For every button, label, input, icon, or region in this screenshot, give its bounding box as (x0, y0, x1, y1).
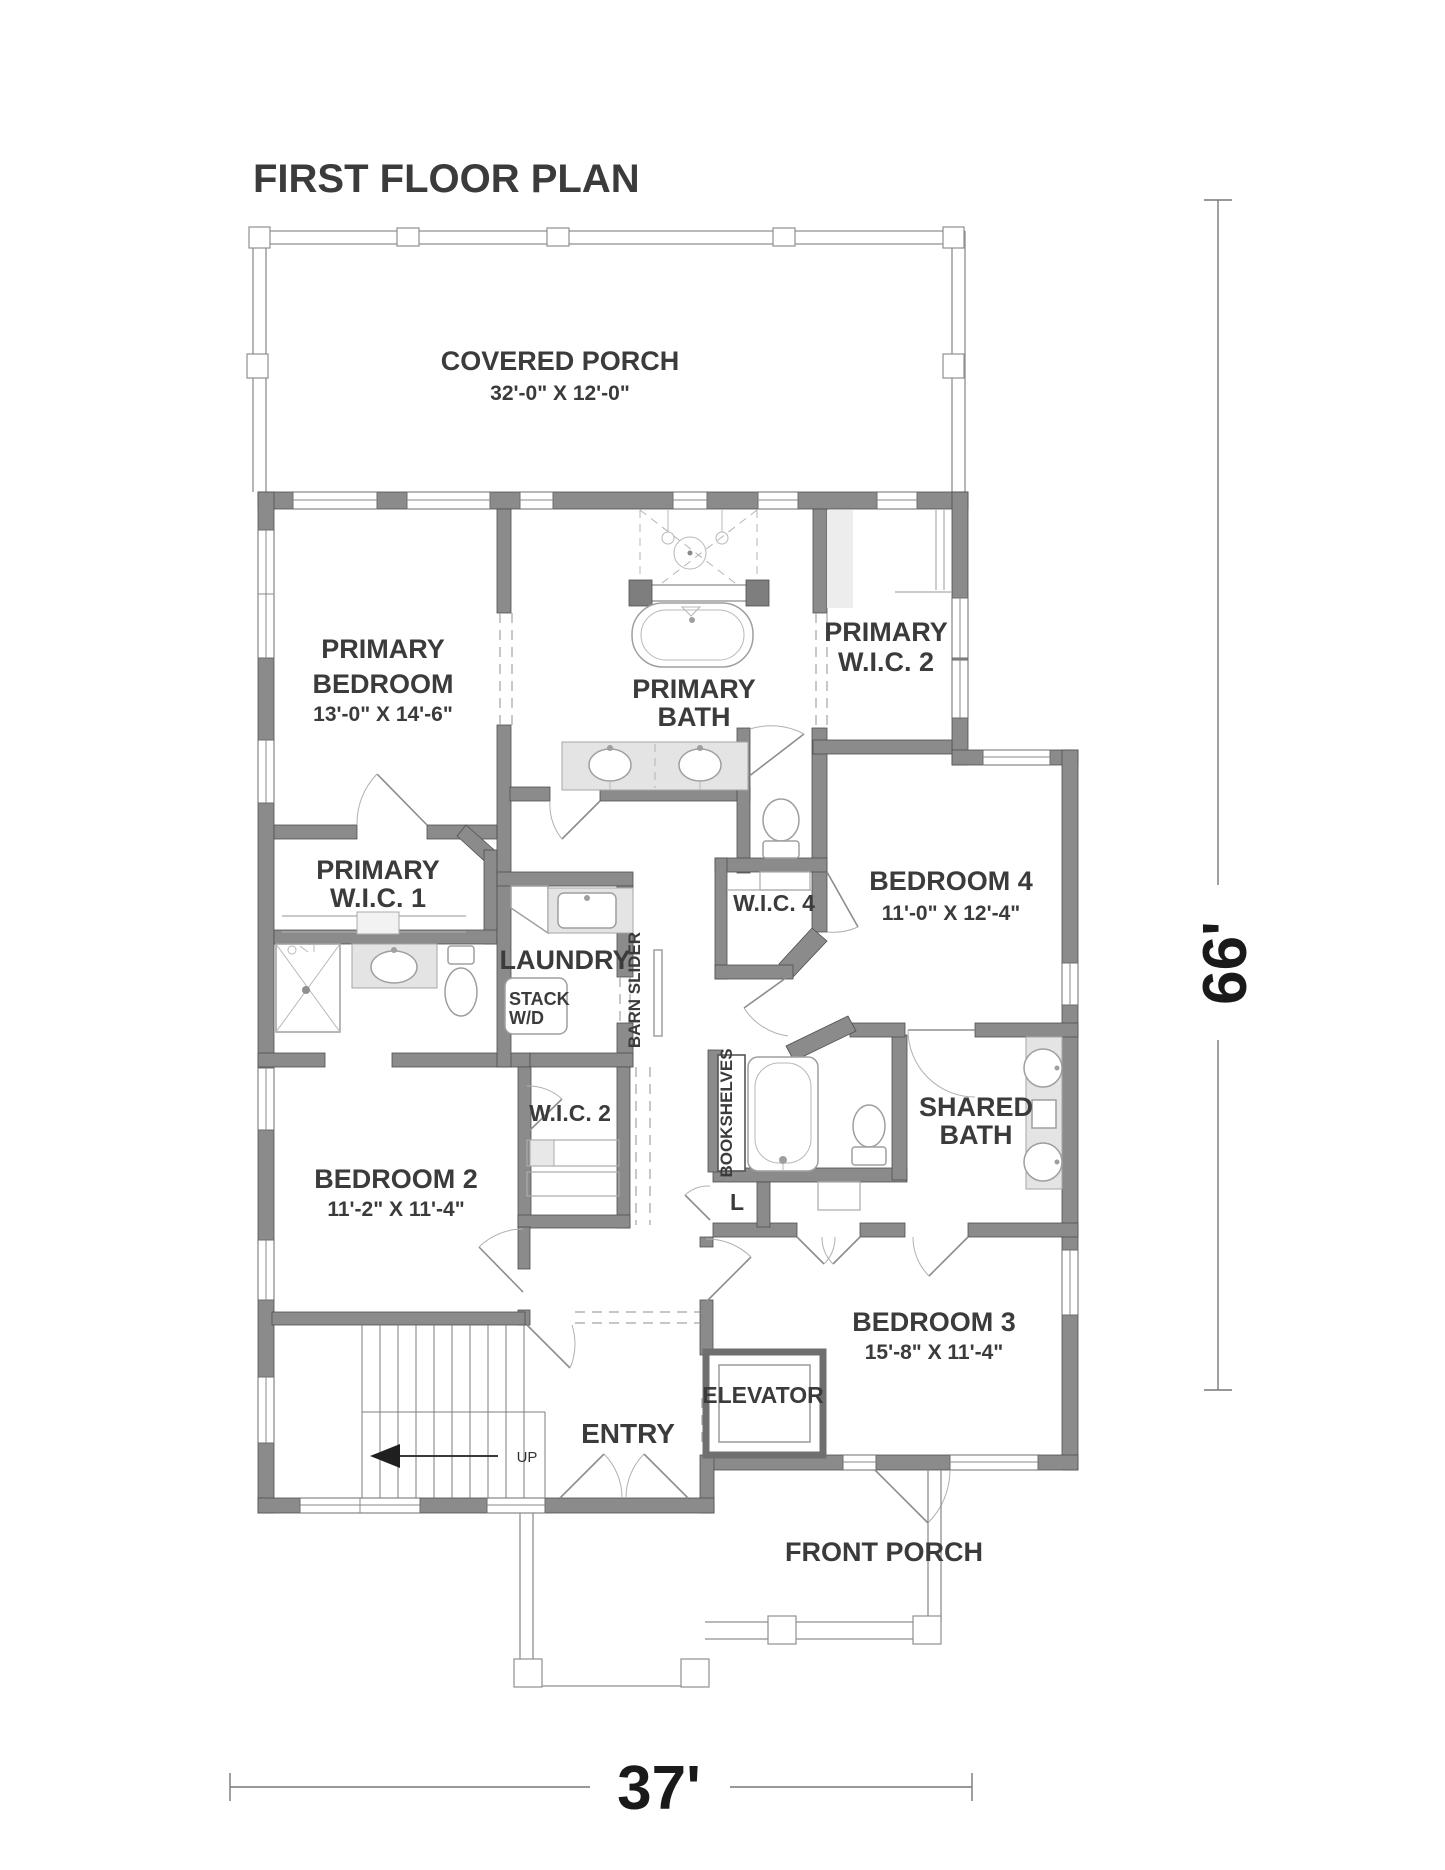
window (520, 492, 553, 509)
hall-bath-fixtures (276, 944, 477, 1032)
room-label-bedroom4: BEDROOM 4 (869, 866, 1033, 896)
door-linen (685, 1186, 710, 1220)
door-bath-bedroom3 (913, 1237, 968, 1276)
toilet (763, 799, 799, 858)
window (1062, 1250, 1078, 1315)
window (300, 1498, 420, 1513)
window (293, 492, 377, 509)
porch-post (773, 228, 795, 246)
dimension-height-value: 66' (1191, 921, 1260, 1005)
window (407, 492, 490, 509)
room-dims-primary-bedroom: 13'-0" X 14'-6" (313, 703, 453, 726)
shower-bench (640, 585, 757, 601)
room-label-shared-bath: SHARED (919, 1092, 1033, 1122)
porch-post (943, 227, 964, 248)
porch-post (397, 228, 419, 246)
room-label-covered-porch: COVERED PORCH (441, 346, 680, 376)
window (983, 750, 1050, 765)
door-bedroom3 (706, 1239, 751, 1302)
room-label-primary-wic2: W.I.C. 2 (838, 647, 934, 677)
porch-post (681, 1659, 709, 1687)
toilet (445, 946, 477, 1016)
room-labels: FIRST FLOOR PLAN COVERED PORCH 32'-0" X … (253, 157, 1033, 1567)
room-label-wic2: W.I.C. 2 (529, 1100, 611, 1126)
label-stairs-up: UP (517, 1449, 538, 1466)
room-label-bedroom3: BEDROOM 3 (852, 1307, 1016, 1337)
page-title: FIRST FLOOR PLAN (253, 157, 640, 201)
room-label-bedroom2: BEDROOM 2 (314, 1164, 478, 1194)
door-b3-porch (875, 1470, 950, 1523)
window (258, 1377, 274, 1443)
label-bookshelves: BOOKSHELVES (717, 1048, 736, 1177)
room-label-primary-bedroom: PRIMARY (321, 634, 445, 664)
shower (276, 944, 340, 1032)
room-label-laundry: LAUNDRY (500, 945, 631, 975)
dimension-width-value: 37' (617, 1754, 701, 1823)
window (843, 1455, 876, 1470)
label-barn-slider: BARN SLIDER (625, 932, 644, 1048)
porch-post (913, 1616, 941, 1644)
stairs (362, 1325, 545, 1498)
room-label-front-porch: FRONT PORCH (785, 1537, 983, 1567)
window (877, 492, 917, 509)
room-label-elevator: ELEVATOR (702, 1382, 824, 1408)
room-dims-bedroom4: 11'-0" X 12'-4" (882, 902, 1020, 925)
vanity (352, 944, 437, 988)
room-dims-covered-porch: 32'-0" X 12'-0" (490, 382, 630, 405)
room-label-primary-wic1: PRIMARY (316, 855, 440, 885)
window (758, 492, 798, 509)
window (258, 530, 274, 658)
porch-post (249, 227, 270, 248)
door-wic4 (827, 872, 858, 932)
window (952, 660, 968, 718)
porch-post (768, 1616, 796, 1644)
window (487, 1498, 545, 1513)
room-label-primary-bath: PRIMARY (632, 674, 756, 704)
window (952, 598, 968, 658)
room-label-primary-wic1: W.I.C. 1 (330, 883, 426, 913)
floor-plan-drawing: FIRST FLOOR PLAN COVERED PORCH 32'-0" X … (0, 0, 1445, 1870)
window (258, 1240, 274, 1300)
door-b3-closet (797, 1237, 860, 1264)
bathtub (748, 1057, 818, 1171)
door-water-closet (748, 726, 804, 777)
stair-direction-arrow (370, 1444, 400, 1468)
room-label-wic4: W.I.C. 4 (733, 890, 815, 916)
toilet (852, 1105, 886, 1165)
room-dims-bedroom2: 11'-2" X 11'-4" (327, 1198, 464, 1221)
room-label-primary-wic2: PRIMARY (824, 617, 948, 647)
dimension-width: 37' (230, 1754, 972, 1823)
double-vanity (562, 742, 748, 790)
label-stack-wd: STACK (509, 989, 570, 1009)
porch-post (514, 1659, 542, 1687)
door-stairs (527, 1325, 575, 1368)
floor-plan-page: FIRST FLOOR PLAN COVERED PORCH 32'-0" X … (0, 0, 1445, 1870)
label-stack-wd: W/D (509, 1008, 544, 1028)
porch-post (943, 354, 964, 378)
room-label-primary-bedroom: BEDROOM (313, 669, 454, 699)
door-shared-bath (908, 1030, 975, 1097)
window (950, 1455, 1038, 1470)
room-label-shared-bath: BATH (940, 1120, 1013, 1150)
porch-post (547, 228, 569, 246)
room-label-entry: ENTRY (581, 1418, 675, 1449)
window (673, 492, 707, 509)
door-bedroom2 (479, 1229, 523, 1292)
window (1062, 963, 1078, 1005)
room-label-primary-bath: BATH (658, 702, 731, 732)
walk-in-shower (629, 510, 769, 606)
room-label-linen: L (730, 1189, 744, 1215)
dimension-height: 66' (1191, 200, 1260, 1390)
entry-french-doors (560, 1454, 688, 1498)
door-bedroom4 (744, 975, 790, 1036)
door-bath-hall (550, 801, 600, 839)
room-dims-bedroom3: 15'-8" X 11'-4" (865, 1341, 1003, 1364)
window (258, 740, 274, 803)
window (258, 1068, 274, 1130)
door-wic1 (357, 774, 427, 825)
porch-post (247, 354, 268, 378)
freestanding-tub (632, 603, 753, 667)
barn-door-panel (654, 950, 662, 1036)
